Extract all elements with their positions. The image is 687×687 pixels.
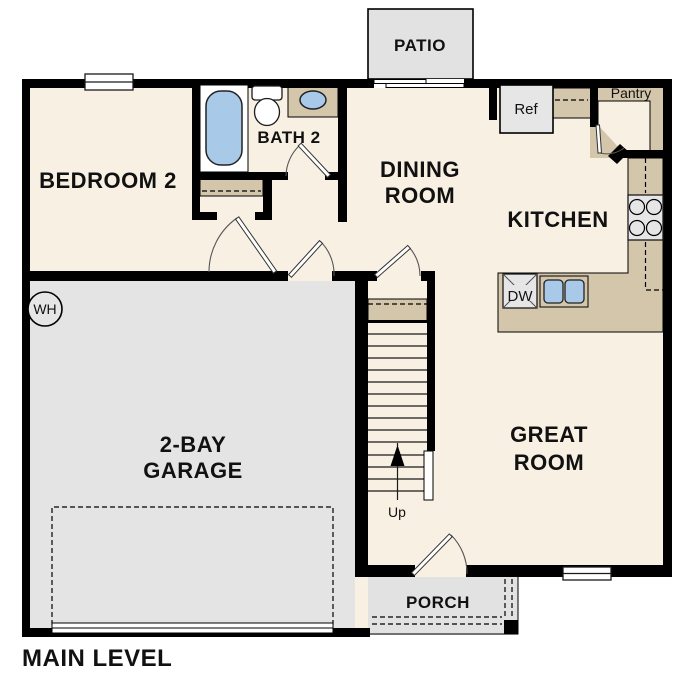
pantry-label: Pantry xyxy=(611,85,651,101)
kitchen-label: KITCHEN xyxy=(507,207,608,232)
wall-closet-stub-right xyxy=(255,212,272,220)
vanity-sink-basin xyxy=(300,91,326,109)
wall-pantry-left-stub xyxy=(590,85,598,127)
patio-slider-panel-2 xyxy=(386,84,464,88)
kitchen-sink-basin-right xyxy=(565,280,584,303)
garage-label-line1: 2-BAY xyxy=(160,432,227,457)
porch-label: PORCH xyxy=(406,593,470,612)
kitchen-sink-basin-left xyxy=(544,280,563,303)
wall-ref-stub xyxy=(489,85,497,120)
bedroom2-label: BEDROOM 2 xyxy=(39,168,177,193)
plan-title: MAIN LEVEL xyxy=(22,645,172,672)
patio-label: PATIO xyxy=(394,36,446,55)
floor-plan-svg: PATIO BEDROOM 2 BATH 2 DINING ROOM KITCH… xyxy=(0,0,687,687)
wall-bedroom-right xyxy=(192,85,200,220)
stair-railing xyxy=(424,451,433,500)
wall-left xyxy=(22,79,30,637)
dining-label-line2: ROOM xyxy=(385,183,455,208)
patio-slider-panel-1 xyxy=(374,80,426,84)
garage-label-line2: GARAGE xyxy=(143,458,243,483)
porch-post xyxy=(504,620,518,634)
bathtub xyxy=(206,91,242,165)
wall-hall-dining xyxy=(338,85,347,222)
wall-hall-bottom xyxy=(332,271,377,281)
wall-closet-stub-left xyxy=(192,212,217,220)
wh-label: WH xyxy=(33,301,56,317)
ref-label: Ref xyxy=(514,101,538,118)
great-room-label-line1: GREAT xyxy=(510,422,588,447)
dining-label-line1: DINING xyxy=(380,157,460,182)
wall-bath-bottom xyxy=(192,172,288,180)
wall-garage-top xyxy=(22,271,288,281)
floor-plan: PATIO BEDROOM 2 BATH 2 DINING ROOM KITCH… xyxy=(0,0,687,687)
up-label: Up xyxy=(388,504,406,520)
counter-beside-ref xyxy=(553,88,591,118)
bath2-label: BATH 2 xyxy=(257,128,320,147)
stair-first-riser xyxy=(368,320,427,323)
toilet-bowl xyxy=(255,99,280,126)
wall-stair-right xyxy=(427,271,435,451)
toilet xyxy=(252,86,282,126)
great-room-label-line2: ROOM xyxy=(514,450,584,475)
stair-closet-shelf xyxy=(368,299,427,321)
wall-stair-left xyxy=(355,275,368,577)
dw-label: DW xyxy=(508,288,534,305)
